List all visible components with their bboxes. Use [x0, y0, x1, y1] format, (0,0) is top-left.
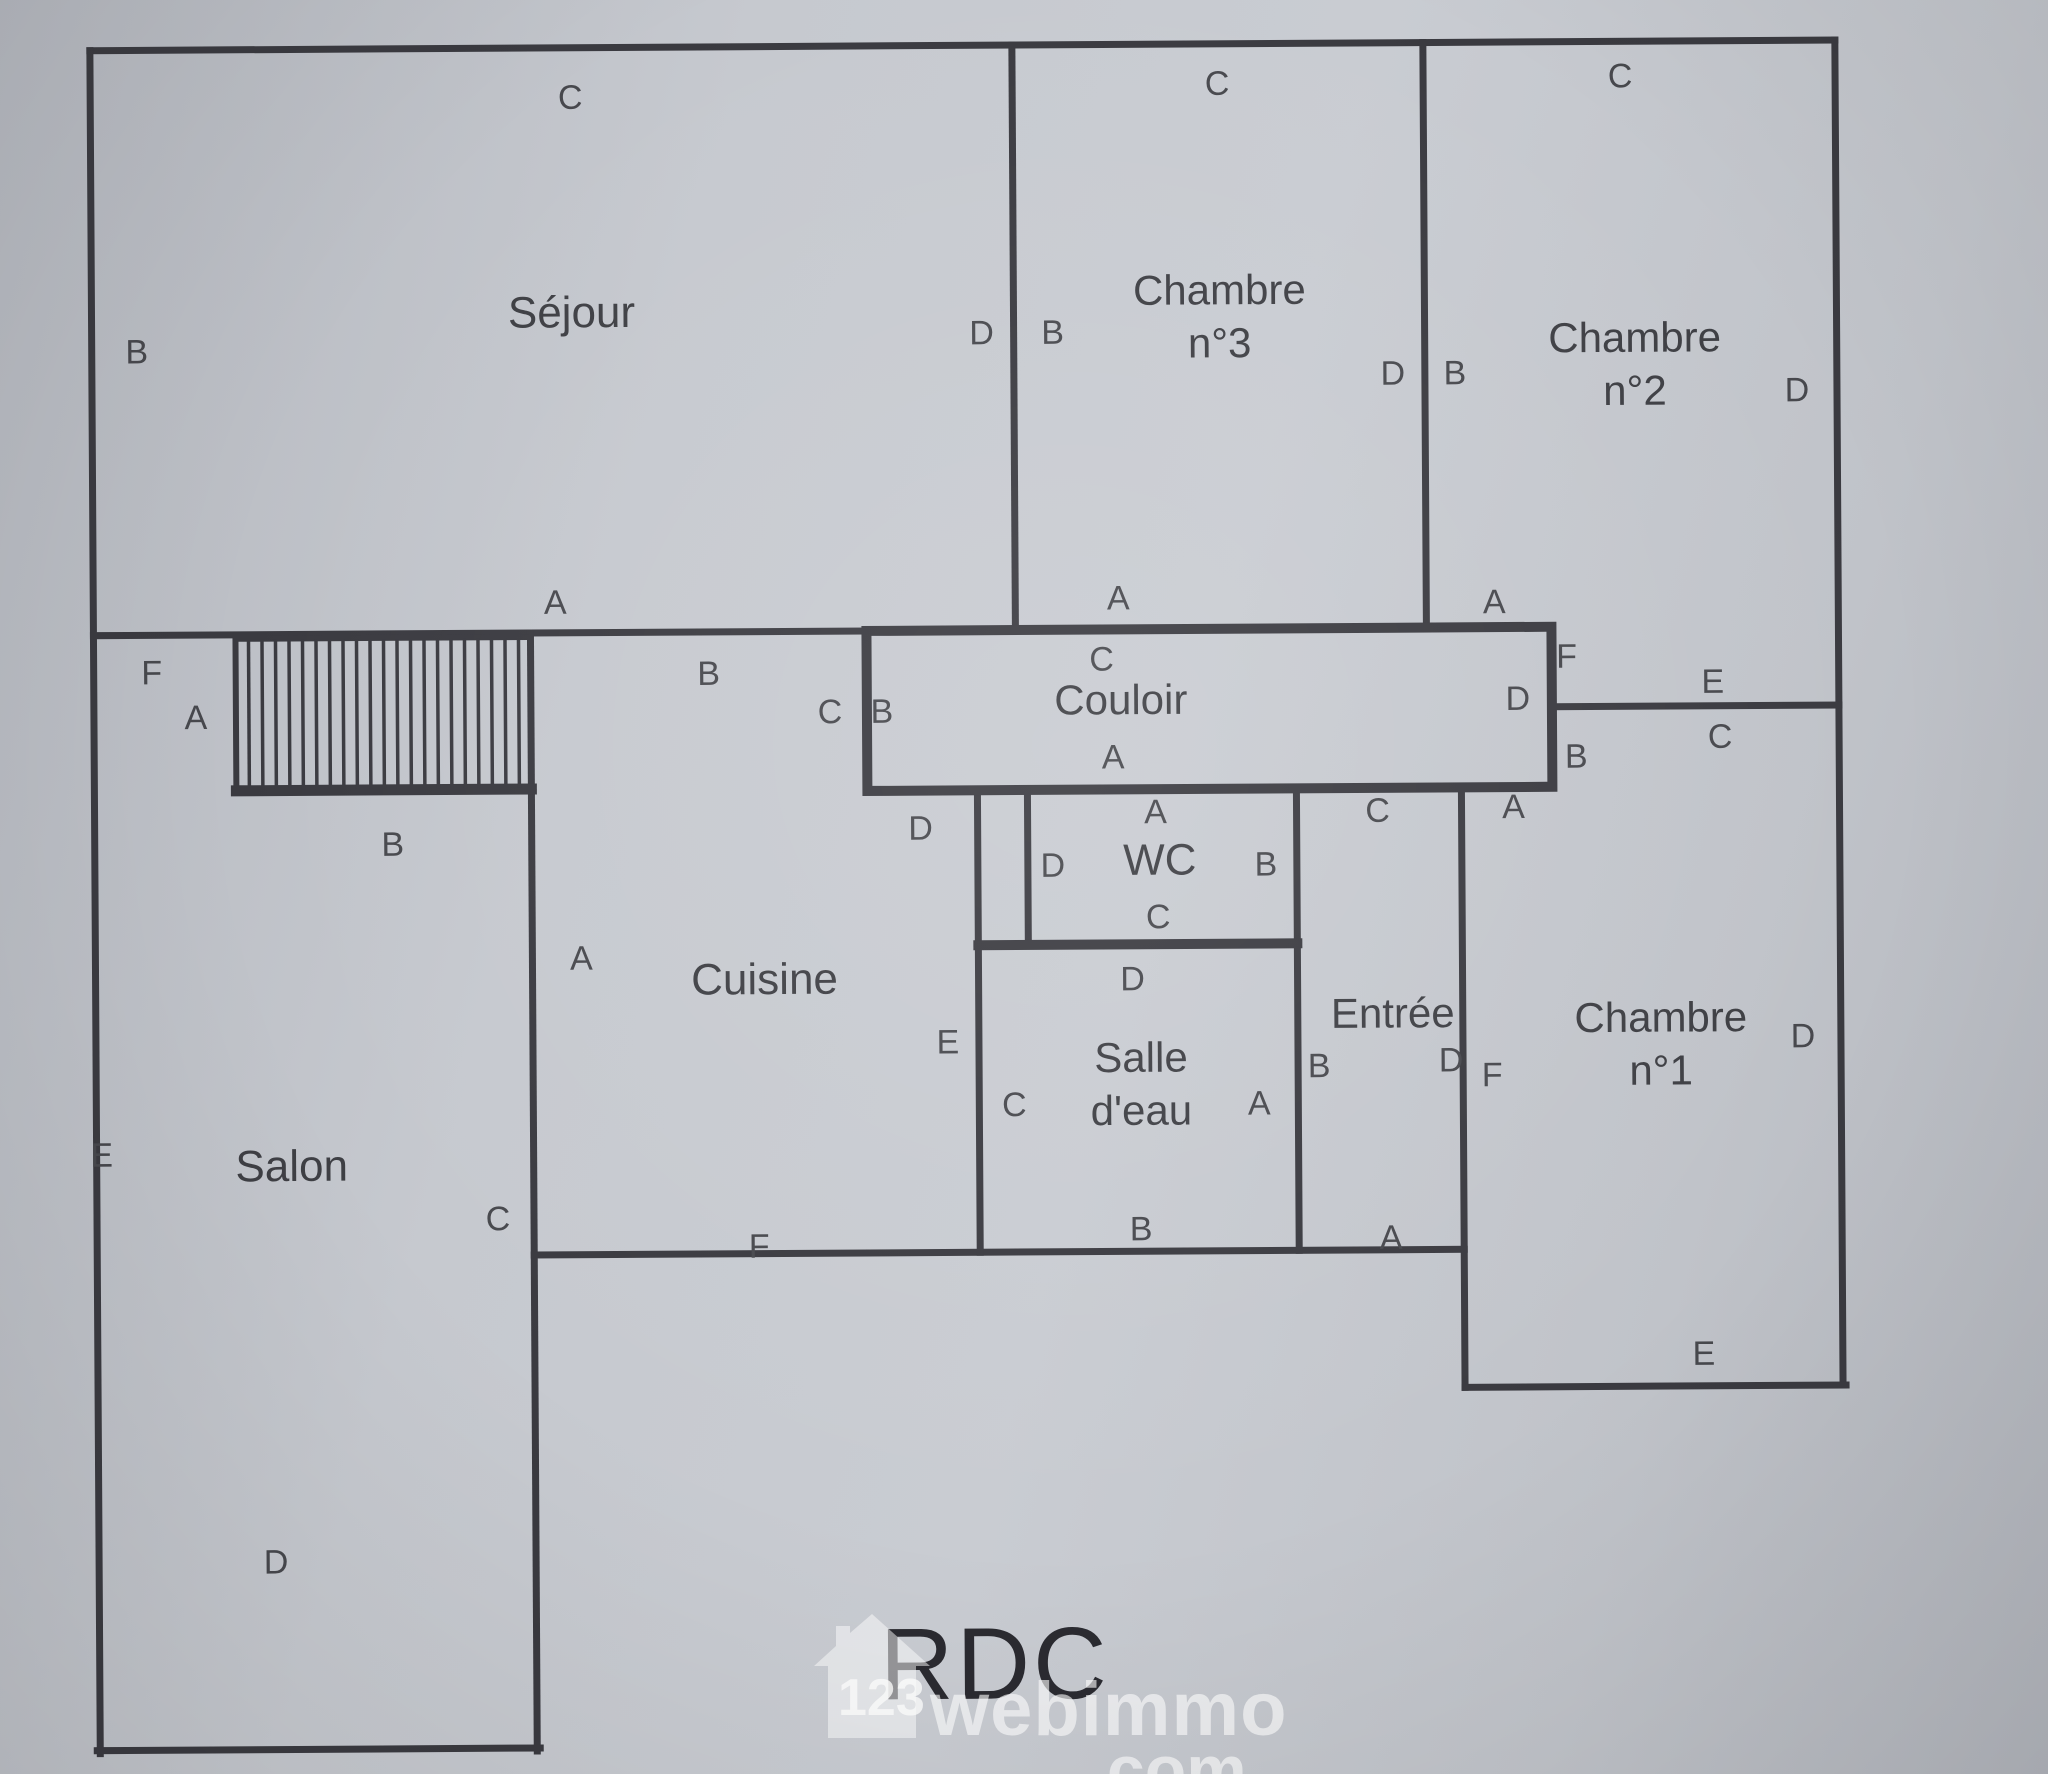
wall-label: C	[1146, 900, 1171, 934]
wall-label: A	[1102, 740, 1125, 774]
wall-ch3-ch2	[1423, 43, 1427, 628]
room-label: Couloir	[1054, 674, 1187, 727]
wall-ch2-bottom	[1552, 705, 1839, 707]
wall-label: C	[1089, 642, 1114, 676]
wall-wc-bottom	[978, 943, 1297, 945]
wall-label: A	[570, 942, 593, 976]
wall-label: D	[1791, 1019, 1816, 1053]
wall-label: B	[381, 828, 404, 862]
couloir-outline	[866, 627, 1552, 791]
wall-label: A	[1502, 790, 1525, 824]
floor-plan: CCCBDBDBDAAAFABBCBCADFBECADAEFCADBCDCABC…	[0, 0, 2048, 1774]
room-label: Chambre n°2	[1548, 311, 1721, 417]
wall-label: A	[1380, 1221, 1403, 1255]
wall-label: B	[125, 335, 148, 369]
wall-label: C	[558, 81, 583, 115]
wall-label: C	[1002, 1088, 1027, 1122]
wall-label: A	[1107, 581, 1130, 615]
wall-label: C	[1205, 67, 1230, 101]
wall-ch1-left	[1461, 787, 1465, 1387]
wall-outer-right	[1835, 40, 1843, 1385]
wall-label: D	[969, 316, 994, 350]
wall-label: B	[697, 657, 720, 691]
walls-drawing	[0, 0, 2048, 1774]
room-label: Cuisine	[691, 952, 838, 1008]
wall-label: D	[1040, 849, 1065, 883]
wall-label: B	[1254, 847, 1277, 881]
wall-label: F	[141, 656, 162, 690]
wall-outer-top	[90, 40, 1835, 51]
wall-label: E	[1701, 665, 1724, 699]
wall-sejour-ch3	[1012, 45, 1016, 630]
room-label: WC	[1123, 832, 1197, 887]
wall-label: C	[1708, 720, 1733, 754]
wall-salledeau-right	[1296, 788, 1299, 1250]
wall-label: A	[1483, 585, 1506, 619]
wall-label: D	[1439, 1043, 1464, 1077]
wall-label: F	[749, 1230, 770, 1264]
wall-outer-left	[90, 51, 100, 1754]
wall-label: B	[1308, 1049, 1331, 1083]
wall-label: E	[937, 1025, 960, 1059]
wall-label: C	[486, 1202, 511, 1236]
wall-label: B	[870, 695, 893, 729]
wall-label: E	[90, 1139, 113, 1173]
wall-label: B	[1041, 316, 1064, 350]
wall-label: D	[264, 1546, 289, 1580]
wall-label: A	[185, 701, 208, 735]
wall-label: C	[1365, 794, 1390, 828]
room-label: Salon	[235, 1139, 348, 1195]
room-label: Séjour	[508, 285, 636, 341]
wall-ch1-bottom	[1465, 1385, 1846, 1387]
room-label: Salle d'eau	[1090, 1031, 1192, 1137]
wall-label: D	[1120, 962, 1145, 996]
wall-label: D	[1785, 373, 1810, 407]
wall-label: A	[544, 586, 567, 620]
wall-label: B	[1565, 740, 1588, 774]
wall-label: F	[1556, 640, 1577, 674]
room-label: Chambre n°3	[1133, 264, 1306, 370]
wall-label: D	[1380, 357, 1405, 391]
wall-lower-bottom	[534, 1249, 1464, 1255]
watermark-suffix: .com	[1088, 1736, 1247, 1774]
watermark-number: 123	[838, 1672, 925, 1724]
wall-label: B	[1443, 356, 1466, 390]
floor-plan-photo: CCCBDBDBDAAAFABBCBCADFBECADAEFCADBCDCABC…	[0, 0, 2048, 1774]
wall-salon-cuisine	[530, 633, 537, 1751]
wall-label: C	[818, 695, 843, 729]
wall-label: A	[1248, 1086, 1271, 1120]
wall-label: B	[1130, 1212, 1153, 1246]
wall-label: D	[908, 812, 933, 846]
stairs-bottom-edge	[236, 789, 531, 791]
wall-salledeau-left	[977, 790, 980, 1252]
wall-label: F	[1482, 1058, 1503, 1092]
room-label: Entrée	[1331, 987, 1455, 1040]
wall-label: D	[1505, 682, 1530, 716]
wall-label: C	[1608, 59, 1633, 93]
room-label: Chambre n°1	[1574, 991, 1747, 1097]
wall-salon-bottom	[97, 1748, 540, 1751]
stairs-hatch	[248, 640, 519, 788]
wall-label: E	[1692, 1337, 1715, 1371]
wall-duct	[1027, 790, 1028, 945]
wall-label: A	[1144, 795, 1167, 829]
